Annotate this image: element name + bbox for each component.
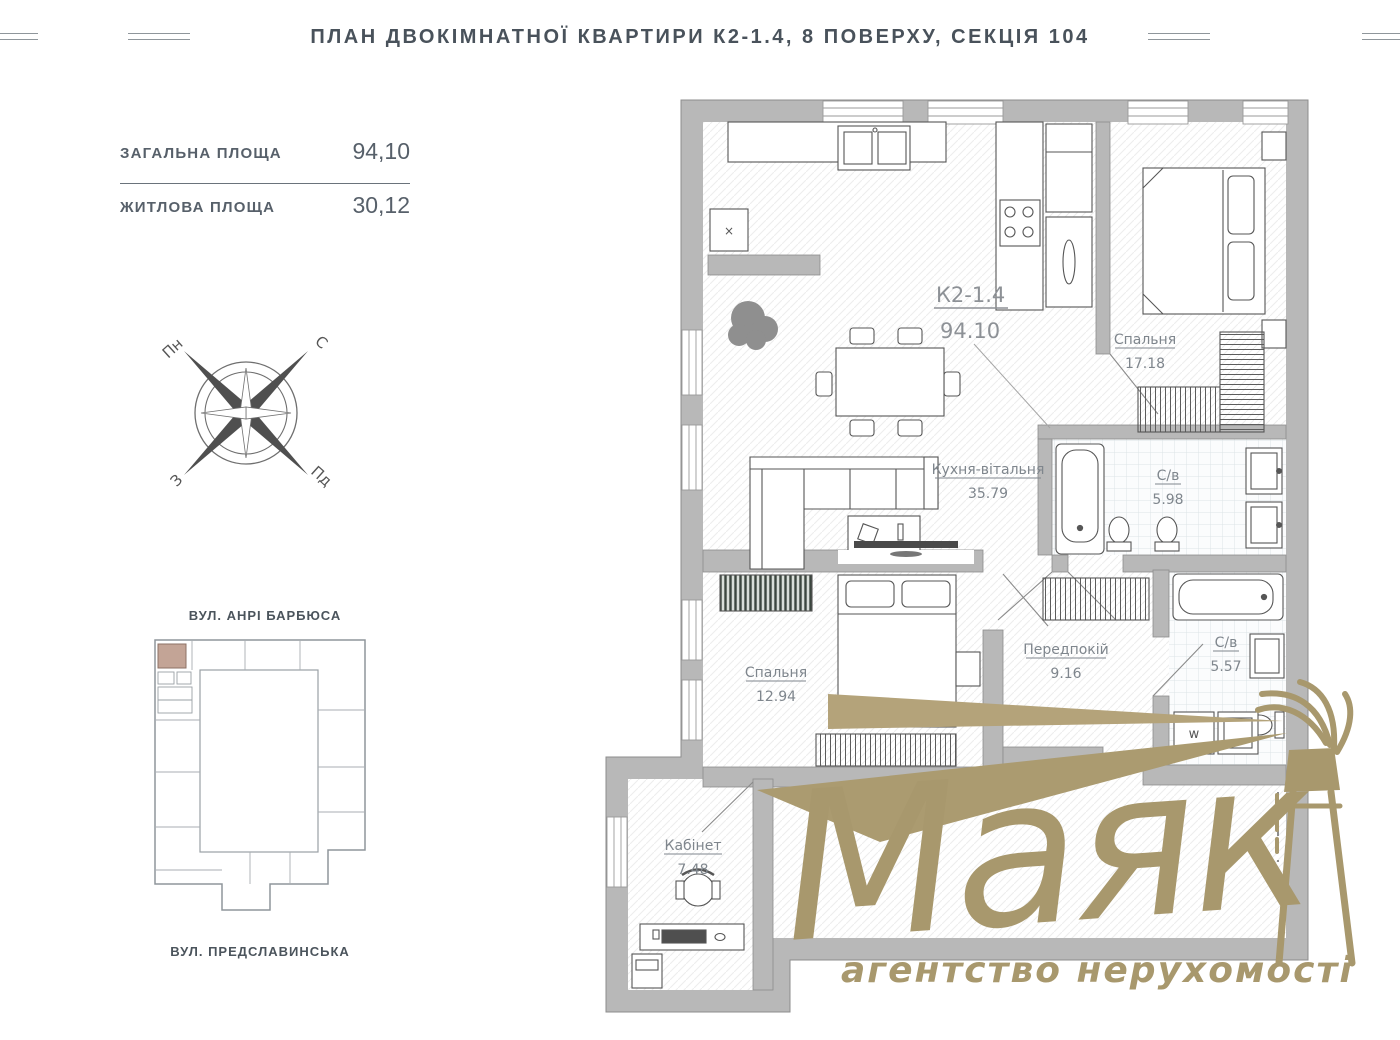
- dresser: [720, 575, 812, 611]
- total-area-value: 94,10: [352, 138, 410, 165]
- highlighted-unit: [158, 644, 186, 668]
- appliance-mark: ×: [724, 224, 734, 238]
- room-name: Передпокій: [1023, 642, 1108, 658]
- dining-table: [836, 348, 944, 416]
- wardrobe: [1220, 332, 1264, 432]
- room-area: 5.57: [1210, 659, 1241, 675]
- room-area: 7.48: [677, 862, 708, 878]
- compass-rose: С Пн З Пд: [158, 328, 340, 500]
- unit-area: 94.10: [940, 319, 1000, 343]
- room-name: С/в: [1157, 468, 1180, 484]
- room-area: 12.94: [756, 689, 796, 705]
- room-name: Кабінет: [665, 838, 722, 854]
- courtyard: [200, 670, 318, 852]
- living-area-value: 30,12: [352, 192, 410, 219]
- room-area: 35.79: [968, 486, 1008, 502]
- total-area-row: ЗАГАЛЬНА ПЛОЩА 94,10: [120, 138, 410, 165]
- wardrobe: [1138, 387, 1220, 432]
- total-area-label: ЗАГАЛЬНА ПЛОЩА: [120, 145, 282, 162]
- building-site-map: [150, 632, 380, 942]
- apartment-plan: ×: [598, 92, 1313, 1017]
- street-label-top: ВУЛ. АНРІ БАРБЮСА: [150, 608, 380, 623]
- room-name: Спальня: [1114, 332, 1176, 348]
- bedroom1-furniture: [1138, 132, 1286, 432]
- living-area-row: ЖИТЛОВА ПЛОЩА 30,12: [120, 192, 410, 219]
- room-area: 5.98: [1152, 492, 1183, 508]
- room-name: Спальня: [745, 665, 807, 681]
- room-area: 17.18: [1125, 356, 1165, 372]
- stove: [1000, 200, 1040, 246]
- compass-label-south: Пд: [307, 462, 335, 490]
- monitor: [662, 930, 706, 943]
- header-ornament-line: [1362, 33, 1400, 40]
- tv-unit: [838, 541, 974, 564]
- room-name: С/в: [1215, 635, 1238, 651]
- floor-plan-page: ПЛАН ДВОКІМНАТНОЇ КВАРТИРИ К2-1.4, 8 ПОВ…: [0, 0, 1400, 1040]
- hallway-wardrobe: [1043, 578, 1149, 620]
- header-ornament-line: [1148, 33, 1210, 40]
- nightstand: [1262, 320, 1286, 348]
- washer-label: w: [1189, 727, 1200, 742]
- nightstand: [956, 652, 980, 686]
- room-area: 9.16: [1050, 666, 1081, 682]
- fridge: [1046, 124, 1092, 212]
- summary-divider: [120, 183, 410, 184]
- toilet: [1109, 517, 1129, 543]
- street-label-bottom: ВУЛ. ПРЕДСЛАВИНСЬКА: [135, 944, 385, 959]
- wardrobe: [816, 734, 956, 766]
- living-area-label: ЖИТЛОВА ПЛОЩА: [120, 199, 275, 216]
- office-chair: [682, 874, 714, 906]
- compass-label-east: С: [311, 332, 331, 352]
- bidet: [1157, 517, 1177, 543]
- printer: [632, 954, 662, 988]
- room-name: Кухня-вітальня: [932, 462, 1045, 478]
- unit-code: К2-1.4: [936, 283, 1005, 307]
- nightstand: [1262, 132, 1286, 160]
- compass-label-north: Пн: [159, 335, 187, 362]
- compass-label-west: З: [167, 471, 187, 491]
